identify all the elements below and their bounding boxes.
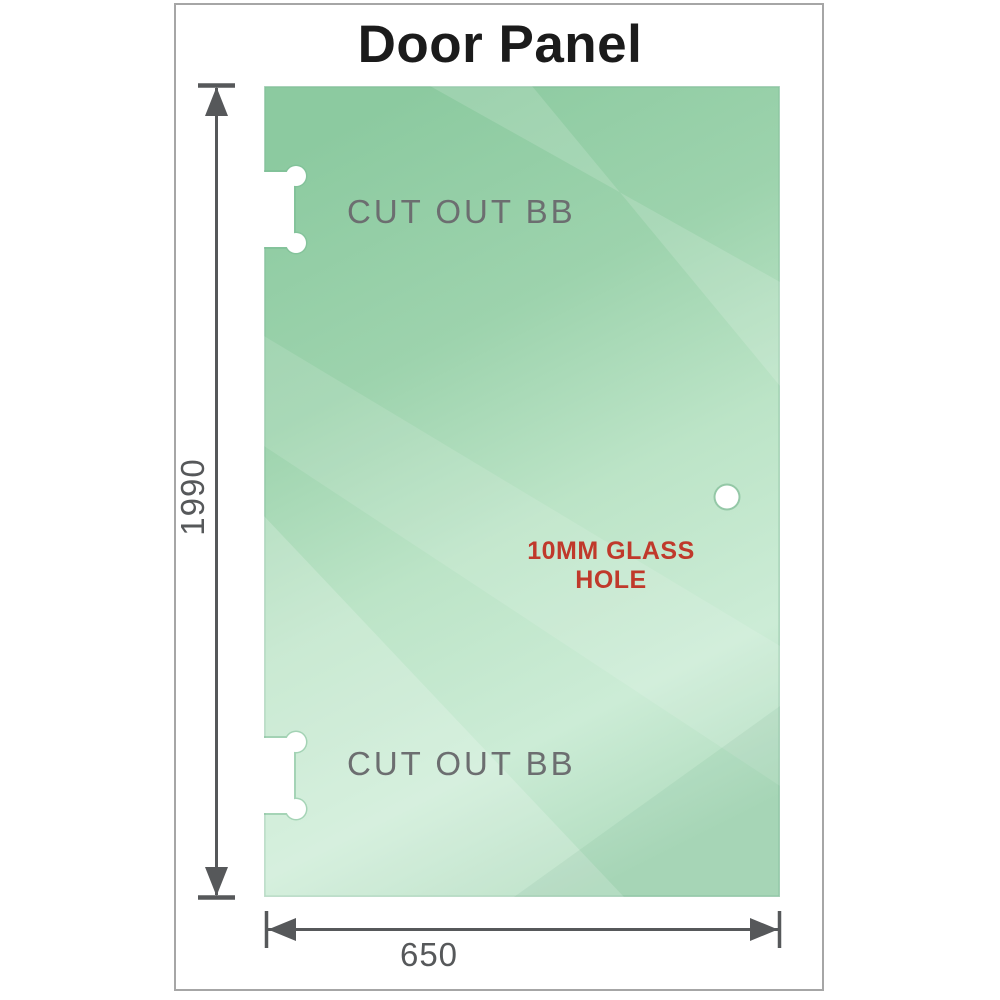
glass-hole [714,484,741,511]
page-title: Door Panel [174,14,826,75]
door-panel-diagram: Door Panel [0,0,1000,1000]
glass-hole-label: 10MM GLASS HOLE [501,537,721,595]
width-dimension-label: 650 [379,936,479,974]
height-dimension-label: 1990 [174,437,214,557]
cutout-top-label: CUT OUT BB [347,193,607,231]
cutout-bottom-label: CUT OUT BB [347,745,607,783]
